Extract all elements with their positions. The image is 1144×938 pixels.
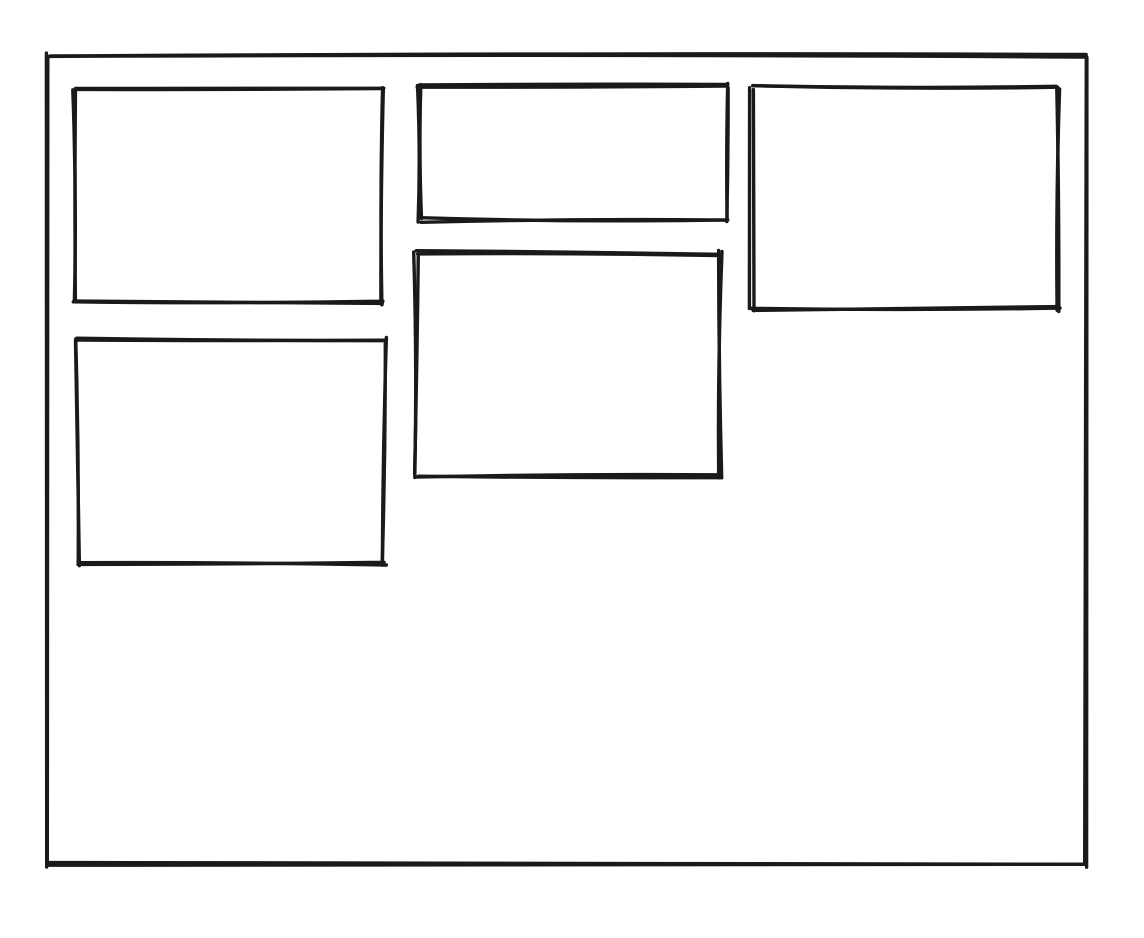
panel-top-center-stroke (420, 83, 728, 220)
panel-middle-left-stroke (76, 340, 387, 566)
panel-middle-left (76, 338, 387, 566)
panel-top-right-stroke (753, 86, 1060, 311)
panel-top-left-stroke (73, 89, 384, 304)
panel-middle-left-stroke (76, 338, 387, 566)
outer-frame-stroke (46, 53, 1086, 867)
panel-middle-center (414, 251, 722, 478)
panel-top-left-stroke (73, 88, 384, 305)
outer-frame (46, 53, 1087, 867)
sketch-page (0, 0, 1144, 938)
panel-top-center-stroke (417, 86, 728, 223)
panel-top-center (417, 83, 728, 222)
wireframe-canvas (0, 0, 1144, 938)
panel-top-right-stroke (749, 86, 1060, 312)
panel-middle-center-stroke (415, 251, 722, 478)
panel-top-left (73, 88, 384, 305)
panel-top-right (749, 86, 1060, 312)
outer-frame-stroke (47, 55, 1087, 867)
panel-middle-center-stroke (414, 251, 722, 478)
